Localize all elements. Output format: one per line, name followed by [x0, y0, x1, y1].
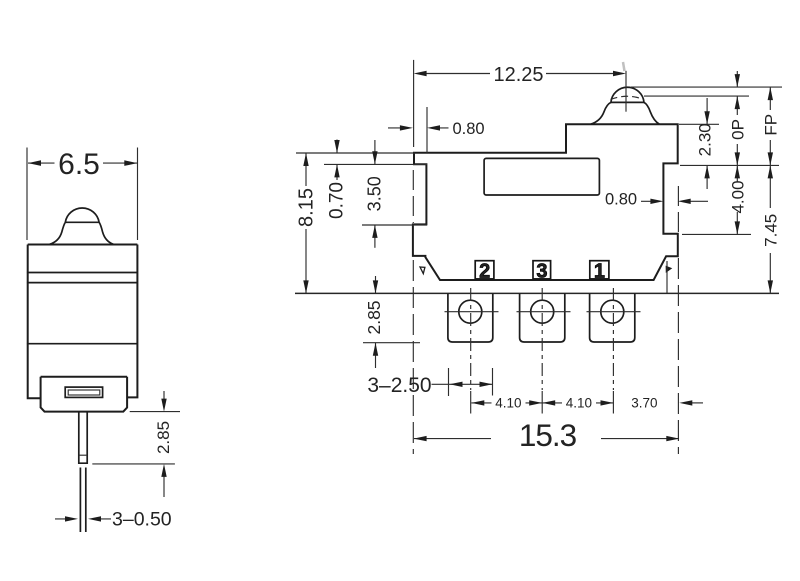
- svg-text:4.10: 4.10: [566, 396, 592, 411]
- svg-text:15.3: 15.3: [519, 417, 577, 453]
- svg-text:6.5: 6.5: [58, 148, 100, 181]
- svg-text:3: 3: [536, 261, 547, 283]
- svg-text:0.70: 0.70: [326, 182, 347, 219]
- svg-text:2.85: 2.85: [364, 300, 384, 334]
- svg-text:0.80: 0.80: [452, 120, 484, 138]
- svg-text:3.70: 3.70: [631, 396, 657, 411]
- svg-text:7.45: 7.45: [761, 214, 780, 247]
- svg-text:4.00: 4.00: [728, 180, 747, 213]
- svg-text:3–2.50: 3–2.50: [367, 374, 431, 397]
- svg-text:2.30: 2.30: [695, 123, 714, 156]
- svg-text:FP: FP: [761, 114, 780, 136]
- svg-text:3–0.50: 3–0.50: [112, 508, 172, 530]
- svg-text:8.15: 8.15: [296, 188, 318, 227]
- svg-text:4.10: 4.10: [495, 396, 521, 411]
- svg-text:3.50: 3.50: [365, 176, 385, 211]
- svg-text:0P: 0P: [728, 119, 747, 140]
- svg-text:0.80: 0.80: [605, 190, 637, 208]
- svg-text:1: 1: [594, 261, 605, 283]
- svg-text:2.85: 2.85: [154, 421, 173, 454]
- svg-text:12.25: 12.25: [493, 64, 543, 86]
- svg-text:2: 2: [479, 261, 490, 283]
